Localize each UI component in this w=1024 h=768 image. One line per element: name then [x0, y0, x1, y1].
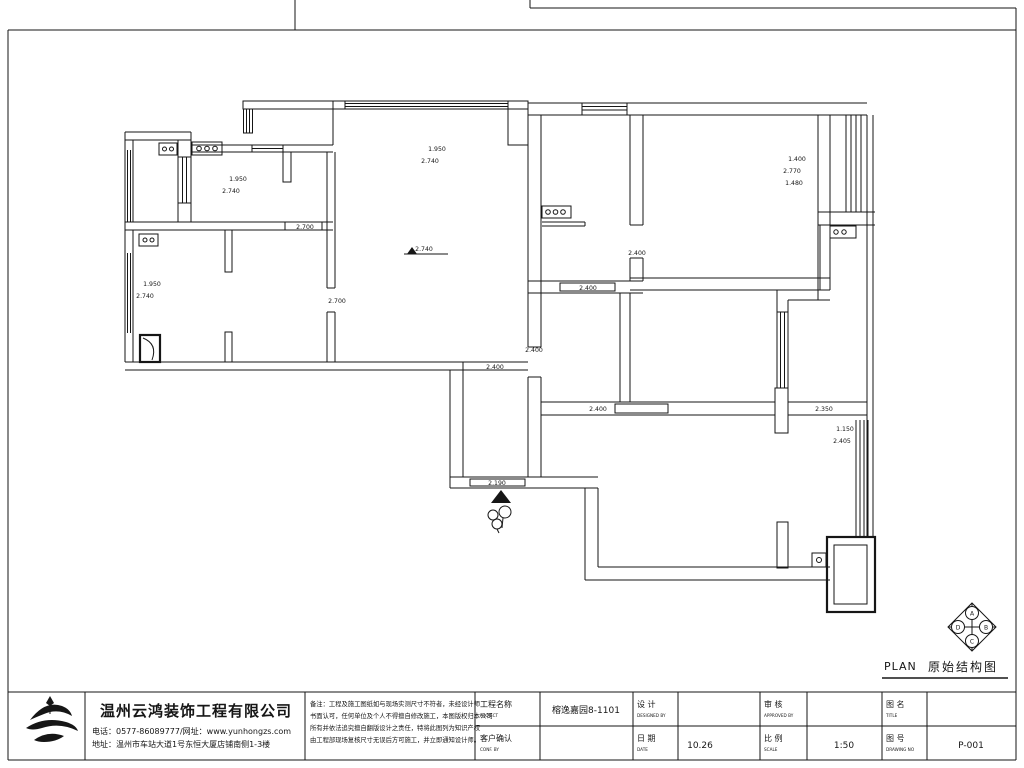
dim-label: 2.400 — [628, 250, 646, 257]
company-phone: 电话：0577-86089777/网址：www.yunhongzs.com — [92, 726, 291, 736]
dim-label: 2.350 — [815, 406, 833, 413]
cad-canvas: 1.950 2.740 1.950 2.740 1.950 2.740 2.74… — [0, 0, 1024, 768]
dim-label: 2.740 — [421, 158, 439, 165]
dim-label: 2.700 — [328, 298, 346, 305]
compass-diamond-logo: A B C D — [948, 603, 996, 651]
company-name: 温州云鸿装饰工程有限公司 — [100, 702, 292, 720]
dim-label: 2.740 — [136, 293, 154, 300]
design-label-en: DESIGNED BY — [637, 713, 666, 718]
title-block-notes: 备注：工程及施工图纸如与现场实测尺寸不符者，未经设计师 书面认可，任何单位及个人… — [310, 699, 493, 744]
note-line: 备注：工程及施工图纸如与现场实测尺寸不符者，未经设计师 — [310, 699, 480, 708]
sheet-border — [8, 0, 1016, 760]
compass-letter-left: D — [956, 625, 961, 632]
dim-label: 1.950 — [229, 176, 247, 183]
scale-label-en: SCALE — [764, 747, 778, 752]
design-label: 设 计 — [637, 699, 656, 709]
date-value: 10.26 — [687, 741, 713, 751]
dim-label: 2.190 — [488, 480, 506, 487]
compass-letter-right: B — [984, 625, 988, 632]
dim-label: 2.740 — [415, 246, 433, 253]
plan-caption: PLAN 原始结构图 — [882, 659, 1008, 678]
drawing-sheet: 1.950 2.740 1.950 2.740 1.950 2.740 2.74… — [0, 0, 1024, 768]
date-label: 日 期 — [637, 734, 656, 743]
plan-caption-zh: 原始结构图 — [928, 659, 998, 674]
entrance-arrow — [491, 490, 511, 503]
dim-label: 2.405 — [833, 438, 851, 445]
title-label-en: TITLE — [885, 713, 898, 718]
plan-caption-en: PLAN — [884, 660, 917, 673]
dim-label: 2.770 — [783, 168, 801, 175]
project-value: 榕逸嘉园8-1101 — [552, 704, 620, 716]
entrance-plant-sketch — [488, 506, 511, 533]
dimension-labels: 1.950 2.740 1.950 2.740 1.950 2.740 2.74… — [136, 146, 854, 487]
title-label: 图 名 — [886, 699, 905, 709]
number-label-en: DRAWING NO — [886, 747, 915, 752]
approve-label: 审 核 — [764, 699, 783, 709]
note-line: 书面认可，任何单位及个人不得擅自修改施工，本图版权归本公司 — [310, 711, 493, 720]
company-address: 地址：温州市车站大道1号东恒大厦店铺南侧1-3楼 — [92, 739, 270, 749]
project-label: 工程名称 — [480, 699, 512, 709]
approve-label-en: APPROVED BY — [764, 713, 794, 718]
confirm-label-en: CONF. BY — [480, 747, 499, 752]
dim-label: 2.400 — [589, 406, 607, 413]
project-label-en: PROJECT — [480, 713, 499, 718]
company-logo — [26, 696, 78, 742]
dim-label: 1.950 — [428, 146, 446, 153]
note-line: 所有并依法追究擅自翻版设计之责任，特将此图列为知识产权 — [310, 723, 481, 732]
compass-letter-bottom: C — [970, 639, 974, 646]
dim-label: 2.400 — [579, 285, 597, 292]
scale-value: 1:50 — [834, 741, 854, 751]
dim-label: 1.950 — [143, 281, 161, 288]
dim-label: 2.740 — [222, 188, 240, 195]
number-value: P-001 — [958, 741, 984, 751]
scale-label: 比 例 — [764, 733, 783, 743]
dim-label: 1.400 — [788, 156, 806, 163]
dim-label: 1.150 — [836, 426, 854, 433]
confirm-label: 客户确认 — [480, 733, 512, 743]
dim-label: 1.480 — [785, 180, 803, 187]
dim-label: 2.400 — [486, 364, 504, 371]
company-info: 温州云鸿装饰工程有限公司 电话：0577-86089777/网址：www.yun… — [92, 702, 292, 749]
columns-and-shafts — [140, 335, 875, 612]
note-line: 由工程部现场复核尺寸无误后方可施工，并立即通知设计师。 — [310, 735, 480, 744]
dim-label: 2.700 — [296, 224, 314, 231]
date-label-en: DATE — [637, 747, 648, 752]
number-label: 图 号 — [886, 734, 905, 743]
dim-label: 2.400 — [525, 347, 543, 354]
